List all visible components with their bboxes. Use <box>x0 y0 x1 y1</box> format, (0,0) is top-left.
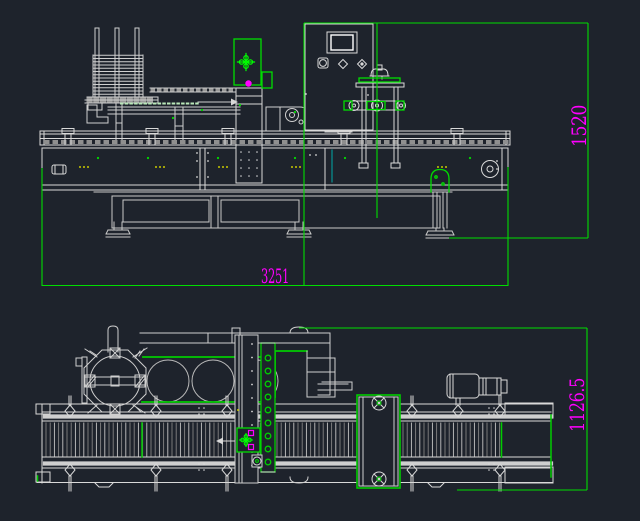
carton-magazine <box>87 28 158 110</box>
leveling-foot <box>106 222 130 237</box>
channel-guides-green <box>142 351 307 402</box>
transfer-station <box>357 395 400 488</box>
cad-drawing-canvas[interactable]: 3251 1520 1126.5 <box>0 0 640 521</box>
machine-base <box>94 192 454 238</box>
infeed-conveyor <box>85 88 240 140</box>
crosshair-marker-icon <box>238 54 255 71</box>
leveling-foot <box>287 222 311 237</box>
dimension-text-front-height: 1520 <box>567 105 591 147</box>
drive-motor <box>447 374 507 398</box>
machine-drawing: 3251 1520 1126.5 <box>0 0 640 521</box>
front-view <box>40 24 510 238</box>
dimension-text-plan-depth: 1126.5 <box>565 378 589 432</box>
plan-housing <box>76 326 330 403</box>
plan-dim-lines <box>299 328 587 490</box>
magenta-marker-dot <box>245 80 251 86</box>
plan-view <box>36 326 553 491</box>
guide-rail <box>40 129 510 146</box>
dimension-text-front-width: 3251 <box>261 264 289 288</box>
control-cabinet <box>305 24 373 130</box>
